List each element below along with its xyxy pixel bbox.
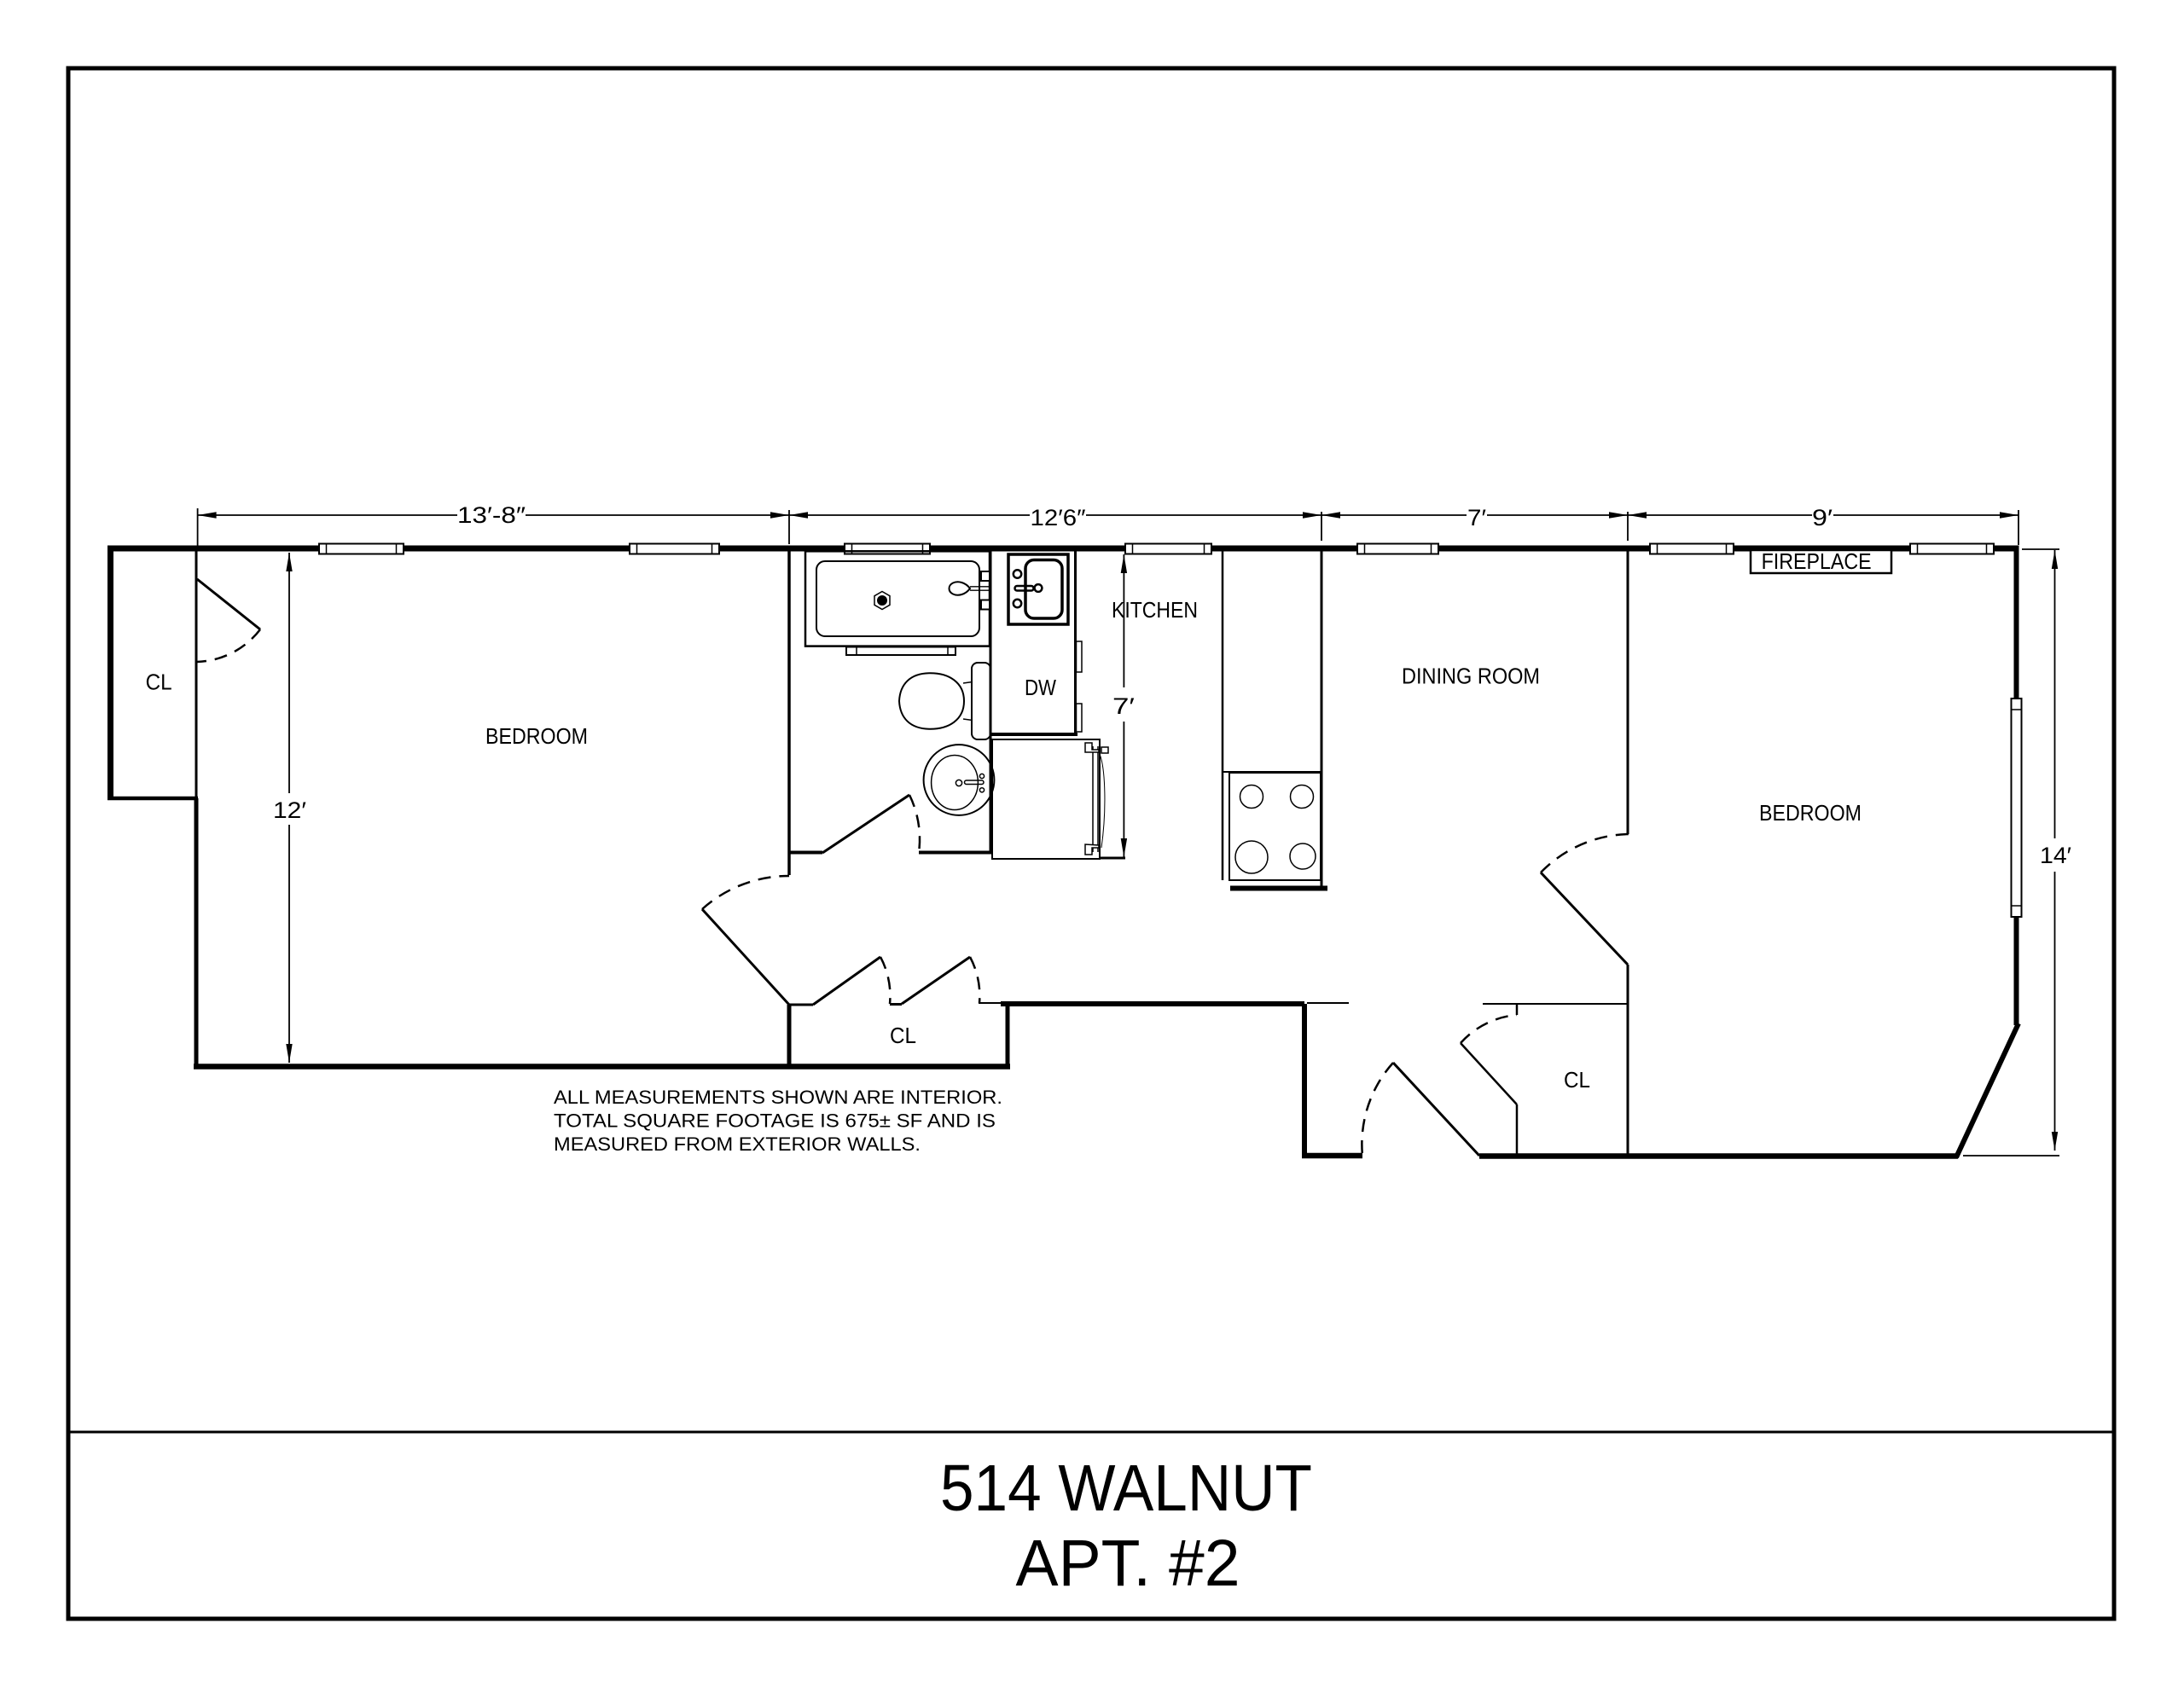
- svg-text:BEDROOM: BEDROOM: [485, 725, 588, 749]
- svg-text:CL: CL: [1564, 1069, 1590, 1093]
- svg-text:APT. #2: APT. #2: [1016, 1527, 1240, 1600]
- svg-text:13′-8″: 13′-8″: [457, 502, 526, 528]
- svg-text:14′: 14′: [2040, 843, 2071, 868]
- svg-text:CL: CL: [146, 671, 172, 695]
- svg-text:FIREPLACE: FIREPLACE: [1762, 550, 1872, 574]
- svg-text:DW: DW: [1025, 676, 1056, 700]
- svg-text:12′: 12′: [273, 797, 306, 823]
- svg-text:KITCHEN: KITCHEN: [1112, 599, 1198, 623]
- svg-text:7′: 7′: [1467, 505, 1486, 530]
- svg-text:ALL MEASUREMENTS SHOWN ARE INT: ALL MEASUREMENTS SHOWN ARE INTERIOR.: [554, 1087, 1002, 1108]
- svg-text:7′: 7′: [1112, 693, 1135, 719]
- svg-text:9′: 9′: [1812, 505, 1833, 530]
- svg-text:BEDROOM: BEDROOM: [1759, 802, 1862, 826]
- svg-text:514 WALNUT: 514 WALNUT: [940, 1452, 1312, 1525]
- svg-text:DINING ROOM: DINING ROOM: [1402, 665, 1540, 689]
- svg-text:TOTAL SQUARE FOOTAGE IS 675± S: TOTAL SQUARE FOOTAGE IS 675± SF AND IS: [554, 1110, 996, 1132]
- svg-text:12′6″: 12′6″: [1031, 505, 1086, 530]
- svg-text:MEASURED FROM EXTERIOR WALLS.: MEASURED FROM EXTERIOR WALLS.: [554, 1133, 921, 1155]
- svg-text:CL: CL: [890, 1024, 916, 1048]
